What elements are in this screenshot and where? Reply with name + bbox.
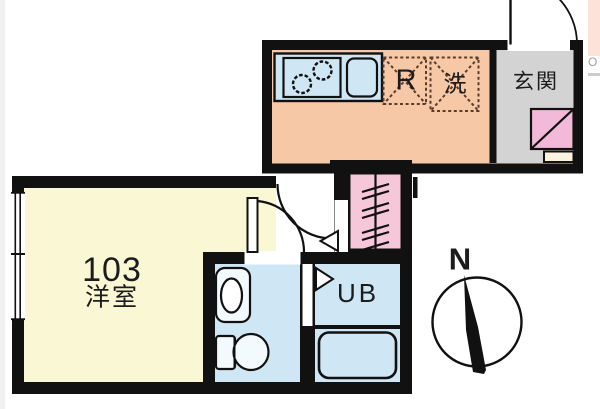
- unit-bath-label: UB: [337, 280, 379, 306]
- entrance-label: 玄関: [513, 72, 559, 93]
- refrigerator-label: R: [396, 67, 417, 96]
- room-type-label: 洋室: [85, 286, 139, 311]
- bathroom-left-wall: [203, 252, 215, 394]
- exterior-wall-stub: [413, 177, 418, 198]
- edge-fragment-glyph: O: [588, 56, 597, 68]
- edge-gray-line: [588, 73, 600, 76]
- washer-label: 洗: [444, 73, 467, 96]
- room-number-label: 103: [82, 253, 142, 287]
- compass: [433, 275, 522, 374]
- washroom-doorway: [245, 251, 301, 265]
- ub-door-leaf: [303, 264, 313, 326]
- entrance-door-opening: [508, 39, 571, 51]
- kitchen-counter: [275, 54, 383, 102]
- toilet-bowl: [234, 334, 269, 370]
- staircase: [330, 160, 418, 264]
- edge-pink-strip: [588, 0, 600, 56]
- window-glass: [11, 192, 25, 320]
- window: [11, 192, 25, 320]
- ub-divider-line: [315, 325, 400, 329]
- shoe-cabinet-lower: [544, 152, 574, 163]
- washbasin-bowl: [221, 279, 242, 313]
- toilet-tank: [216, 336, 235, 369]
- bathtub: [319, 333, 396, 379]
- compass-north-label: N: [449, 244, 471, 275]
- entrance-door-swing-arc: [511, 0, 577, 44]
- entrance-divider-wall: [490, 50, 497, 163]
- washbasin: [216, 268, 250, 322]
- compass-needle-icon: [464, 275, 486, 374]
- floor-plan-drawing: [0, 0, 600, 409]
- left-edge-artifact: [0, 0, 5, 409]
- room-door-leaf: [248, 198, 258, 252]
- floor-plan: 103 洋室 玄関 R 洗 UB N O: [0, 0, 600, 409]
- entrance-door: [508, 0, 578, 51]
- sink: [347, 59, 377, 97]
- toilet: [216, 334, 269, 370]
